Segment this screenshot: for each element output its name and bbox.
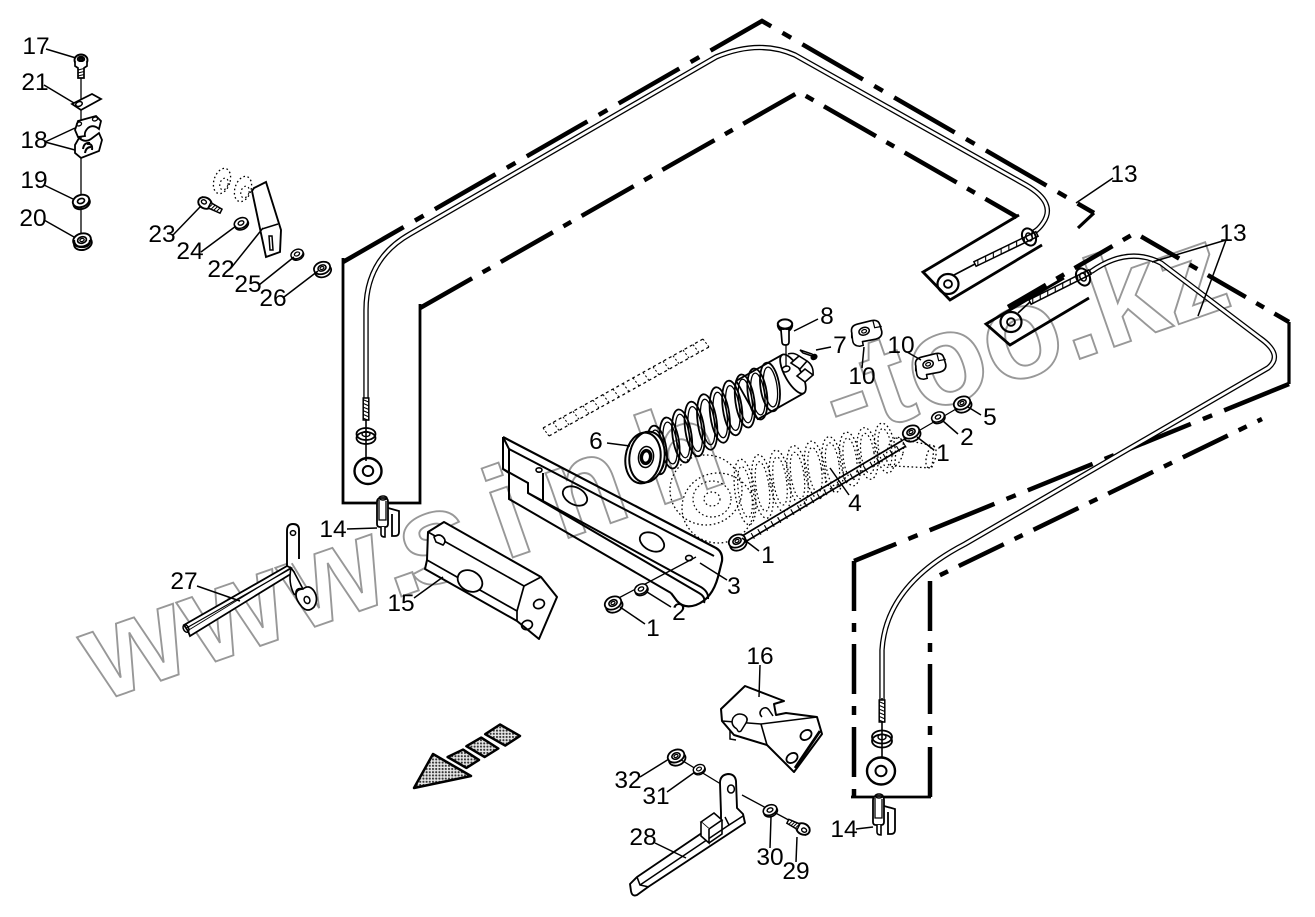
svg-text:15: 15 [387, 590, 414, 617]
svg-text:7: 7 [833, 332, 847, 359]
svg-text:13: 13 [1110, 161, 1137, 188]
svg-text:2: 2 [960, 424, 974, 451]
svg-text:4: 4 [848, 490, 862, 517]
svg-text:32: 32 [614, 767, 641, 794]
svg-text:20: 20 [19, 205, 46, 232]
svg-text:2: 2 [672, 599, 686, 626]
svg-text:10: 10 [887, 332, 914, 359]
svg-text:1: 1 [761, 542, 775, 569]
svg-text:29: 29 [782, 858, 809, 885]
svg-text:21: 21 [21, 69, 48, 96]
svg-text:18: 18 [20, 127, 47, 154]
svg-text:27: 27 [170, 568, 197, 595]
svg-text:14: 14 [319, 516, 346, 543]
svg-text:23: 23 [148, 221, 175, 248]
svg-text:13: 13 [1219, 220, 1246, 247]
svg-text:8: 8 [820, 303, 834, 330]
svg-text:28: 28 [629, 824, 656, 851]
svg-text:3: 3 [727, 573, 741, 600]
svg-text:31: 31 [642, 783, 669, 810]
svg-text:22: 22 [207, 256, 234, 283]
svg-text:1: 1 [936, 440, 950, 467]
svg-text:14: 14 [830, 816, 857, 843]
svg-text:30: 30 [756, 844, 783, 871]
svg-text:24: 24 [176, 238, 203, 265]
svg-text:26: 26 [259, 285, 286, 312]
svg-text:25: 25 [234, 271, 261, 298]
svg-text:6: 6 [589, 428, 603, 455]
svg-text:5: 5 [983, 404, 997, 431]
svg-text:1: 1 [646, 615, 660, 642]
svg-text:19: 19 [20, 167, 47, 194]
svg-text:17: 17 [22, 33, 49, 60]
